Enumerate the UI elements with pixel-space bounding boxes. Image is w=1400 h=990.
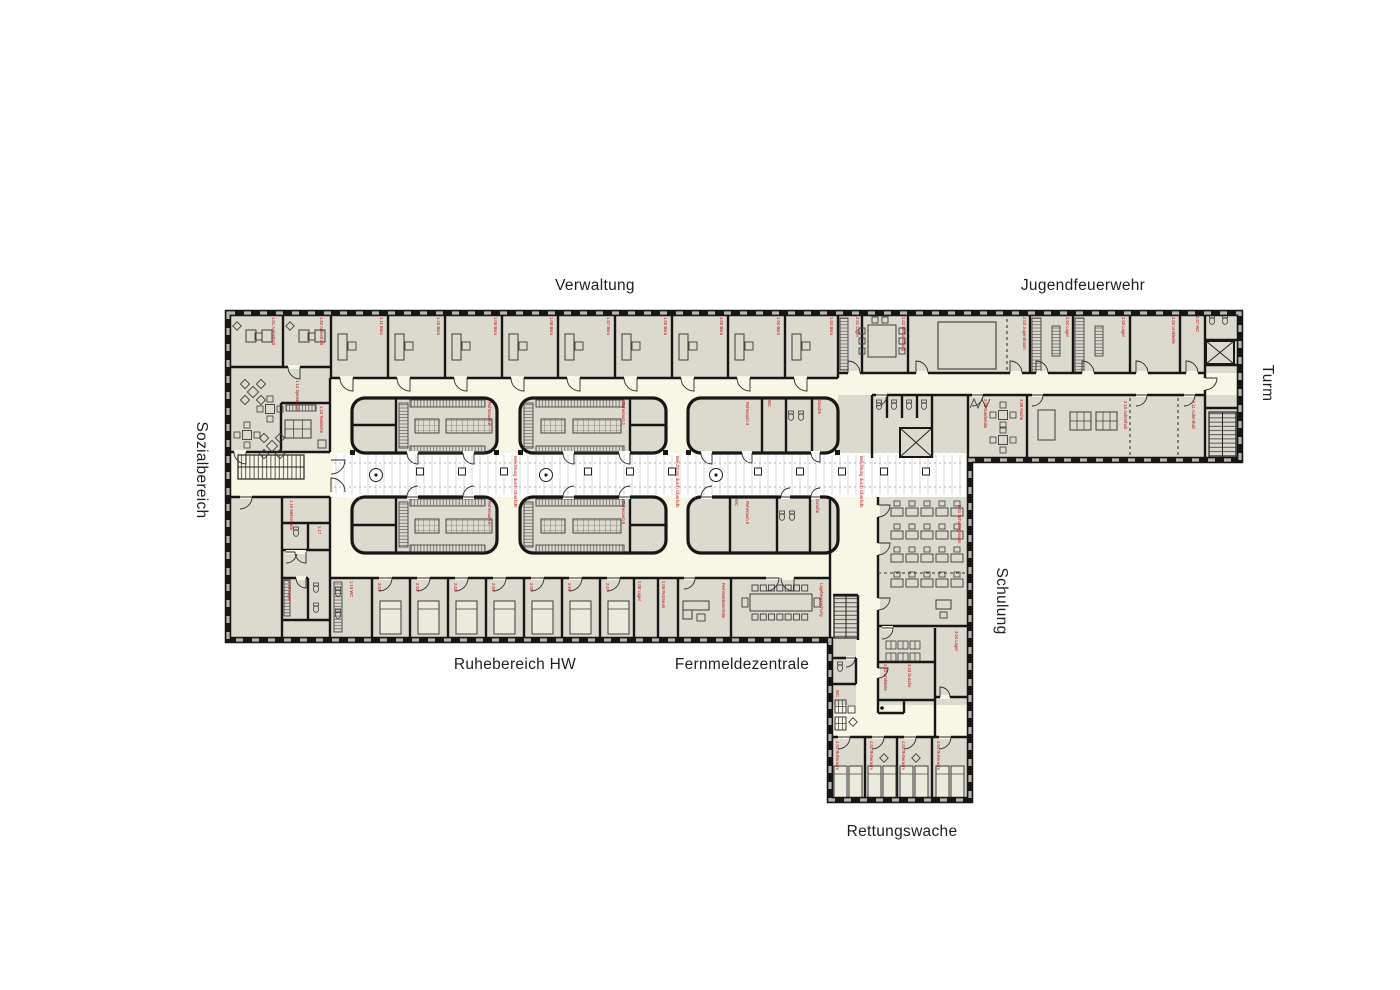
bunk-grid: [415, 419, 439, 433]
room-tag: 2.07 WC: [1195, 316, 1200, 332]
label-schulung: Schulung: [993, 567, 1010, 634]
column-square: [417, 468, 424, 475]
room-tag: 2.02: [415, 583, 420, 592]
door-gap: [407, 451, 418, 455]
bunk-grid: [446, 419, 492, 433]
room-tag: 2.04 Lager: [1065, 317, 1070, 338]
door-gap: [876, 543, 880, 555]
floor-plan-canvas: 1.11 Büro1.10 Büro1.09 Büro1.08 Büro1.07…: [0, 0, 1400, 990]
room-tag: 2.03 Jugendraum: [1022, 317, 1027, 350]
door-gap: [295, 550, 306, 554]
bed: [532, 601, 553, 634]
room-tag: 2.06 Umkleide: [1171, 317, 1176, 344]
room-tag: 4.03 Ruheraum: [901, 741, 906, 770]
column-round-center: [374, 473, 377, 476]
corridor: [830, 705, 968, 737]
room-tag: 1.05 Büro: [719, 317, 724, 336]
bunk-grid: [573, 519, 621, 533]
room-tag: 2.11 Aufenthalt: [1191, 401, 1196, 429]
door-gap: [1203, 378, 1207, 390]
room-tag: 2.05 Lager: [1121, 317, 1126, 338]
shelf-rack: [840, 318, 848, 370]
label-jugendfeuerwehr: Jugendfeuerwehr: [1021, 277, 1145, 294]
room-tag: Ruheraum 2: [487, 402, 492, 426]
wall-post: [663, 450, 668, 455]
door-gap: [781, 576, 794, 580]
room-tag: 2.09 Küche: [1019, 399, 1024, 421]
room-tag: 4.04 Ruheraum: [936, 741, 941, 770]
room-tag: Fernmeldezentrale: [721, 583, 726, 619]
shelf-rack: [410, 499, 485, 506]
bed: [608, 601, 629, 634]
shelf-rack: [1052, 326, 1060, 356]
bed: [883, 766, 896, 798]
door-gap: [619, 451, 630, 455]
room-tag: Dusche: [817, 400, 822, 415]
shelf-rack: [536, 446, 624, 453]
room-tag: 2.10 Aufenthalt: [1123, 401, 1128, 430]
bunk-grid: [541, 519, 565, 533]
door-gap: [463, 451, 474, 455]
door-gap: [288, 365, 300, 369]
column-square: [923, 468, 930, 475]
shelf-rack: [524, 403, 533, 448]
bunk-grid: [415, 519, 439, 533]
shelf-rack: [410, 400, 485, 407]
room-tag: 2.05: [529, 583, 534, 592]
shelf-rack: [410, 545, 485, 552]
door-gap: [397, 376, 410, 380]
door-gap: [916, 371, 928, 375]
room-tag: Lagebesprechung: [819, 583, 824, 617]
room-tag: Ruheraum 3: [745, 402, 750, 426]
shelf-rack: [1032, 318, 1041, 372]
bed: [418, 601, 439, 634]
room-tag: 1.02 Aufenthalt: [319, 317, 324, 346]
bed: [915, 766, 928, 798]
bed: [380, 601, 401, 634]
corridor: [838, 373, 1240, 395]
room-tag: 2.01 Lager: [855, 317, 860, 338]
column-square: [669, 468, 676, 475]
room-tag: 1.10 Büro: [436, 317, 441, 336]
wall-post: [350, 450, 355, 455]
room-tag: 1.04 Büro: [776, 317, 781, 336]
wall-post: [518, 450, 523, 455]
door-gap: [811, 451, 820, 455]
bed: [834, 766, 847, 798]
corridor: [856, 640, 878, 713]
shelf-rack: [286, 405, 316, 411]
room-tag: WC: [734, 499, 739, 506]
door-gap: [340, 376, 353, 380]
door-gap: [876, 598, 880, 610]
door-gap: [1010, 371, 1022, 375]
column-square: [839, 468, 846, 475]
shelf-rack: [524, 502, 533, 547]
corridor-note: Belichtung durch Oberlicht: [859, 456, 864, 508]
room-tag: Ruheraum 5: [621, 501, 626, 525]
door-gap: [1186, 371, 1198, 375]
shelf-rack: [399, 502, 408, 547]
door-gap: [454, 376, 467, 380]
column-square: [627, 468, 634, 475]
room-tag: 1.06 Büro: [663, 317, 668, 336]
bunk-grid: [541, 419, 565, 433]
corridor-note: Belichtung durch Oberlicht: [675, 456, 680, 508]
door-gap: [737, 376, 750, 380]
room-tag: 1.11 Büro: [379, 317, 384, 336]
column-square: [881, 468, 888, 475]
shelf-rack: [536, 545, 624, 552]
room-tag: 3.03 Dusche: [907, 664, 912, 688]
bed: [456, 601, 477, 634]
label-fernmeldezentrale: Fernmeldezentrale: [675, 656, 809, 673]
room-tag: 2.04: [491, 583, 496, 592]
room-tag: 3.02 Umkleide: [883, 664, 888, 691]
door-gap: [567, 376, 580, 380]
label-verwaltung: Verwaltung: [555, 277, 635, 294]
label-ruhebereich-hw: Ruhebereich HW: [454, 656, 576, 673]
door-gap: [876, 668, 880, 678]
room-tag: WC: [767, 400, 772, 407]
bunk-grid: [446, 519, 492, 533]
bed: [494, 601, 515, 634]
room-tag: 2.06: [567, 583, 572, 592]
room-tag: Ruheraum 1: [621, 402, 626, 426]
door-gap: [940, 695, 950, 699]
bed: [936, 766, 949, 798]
room-tag: 1.01 Aufenthalt: [271, 317, 276, 346]
bed: [849, 766, 862, 798]
shelf-rack: [536, 400, 624, 407]
room-tag: 1.19 WC: [349, 581, 354, 597]
label-rettungswache: Rettungswache: [847, 823, 958, 840]
door-gap: [234, 450, 246, 454]
room: [832, 658, 856, 684]
room-tag: 2.07: [605, 583, 610, 592]
room-tag: 1.16 Mehrzweck: [289, 500, 294, 531]
room-tag: 1.18 Lager: [287, 581, 292, 602]
room-tag: Dusche: [815, 499, 820, 514]
room-tag: 4.01 Ruheraum: [835, 741, 840, 770]
wall-post: [494, 450, 499, 455]
room-tag: 2.01: [377, 583, 382, 592]
room-tag: 2.08 Garderobe: [983, 399, 988, 429]
room-tag: 1.14 Speiseraum: [295, 380, 300, 412]
floor-plan-drawing: 1.11 Büro1.10 Büro1.09 Büro1.08 Büro1.07…: [0, 0, 1400, 990]
room-tag: Ruheraum 6: [745, 501, 750, 525]
room-tag: Ruheraum 4: [487, 501, 492, 525]
door-gap: [848, 371, 860, 375]
room-tag: 2.08 Lager: [637, 581, 642, 602]
wall-post: [835, 450, 840, 455]
room-tag: 2.02 Besprechung: [901, 317, 906, 352]
door-gap: [681, 376, 694, 380]
shelf-rack: [1095, 326, 1103, 356]
room-tag: 3.04 Lager: [954, 631, 959, 652]
shelf-rack: [399, 403, 408, 448]
column-square: [755, 468, 762, 475]
generated-plan-geometry: 1.11 Büro1.10 Büro1.09 Büro1.08 Büro1.07…: [228, 313, 1240, 800]
wall-post: [686, 450, 691, 455]
bunk-grid: [573, 419, 621, 433]
column-square: [459, 468, 466, 475]
door-gap: [742, 451, 752, 455]
bed: [868, 766, 881, 798]
column-square: [501, 468, 508, 475]
label-sozialbereich: Sozialbereich: [193, 422, 210, 519]
column-dot: [880, 706, 884, 710]
room-tag: 1.17: [317, 526, 322, 535]
room-tag: 1.08 Büro: [549, 317, 554, 336]
room-tag: 1.15 Teeküche: [319, 406, 324, 434]
room-tag: 1.07 Büro: [606, 317, 611, 336]
room-tag: 1.09 Büro: [493, 317, 498, 336]
room-tag: 2.03: [453, 583, 458, 592]
door-gap: [1082, 371, 1094, 375]
shelf-rack: [536, 499, 624, 506]
corridor: [1205, 373, 1240, 395]
bed: [900, 766, 913, 798]
room-tag: 3.01 Schulungsraum: [957, 505, 962, 544]
door-gap: [701, 451, 712, 455]
label-turm: Turm: [1259, 365, 1276, 402]
column-round-center: [544, 473, 547, 476]
column-square: [797, 468, 804, 475]
door-gap: [1036, 371, 1048, 375]
bed: [951, 766, 964, 798]
shelf-rack: [1075, 318, 1084, 372]
door-gap: [511, 376, 524, 380]
door-gap: [876, 505, 880, 517]
bed: [570, 601, 591, 634]
door-gap: [296, 576, 306, 580]
column-square: [585, 468, 592, 475]
corridor-note: Belichtung durch Oberlicht: [513, 456, 518, 508]
door-gap: [1136, 371, 1148, 375]
column-round-center: [714, 473, 717, 476]
room-tag: WC: [835, 690, 840, 697]
door-gap: [624, 376, 637, 380]
room-tag: 4.02 Ruheraum: [869, 741, 874, 770]
room-tag: 1.03 Büro: [829, 317, 834, 336]
door-gap: [794, 376, 807, 380]
room-tag: 2.09 Putzraum: [661, 581, 666, 609]
door-gap: [563, 451, 574, 455]
